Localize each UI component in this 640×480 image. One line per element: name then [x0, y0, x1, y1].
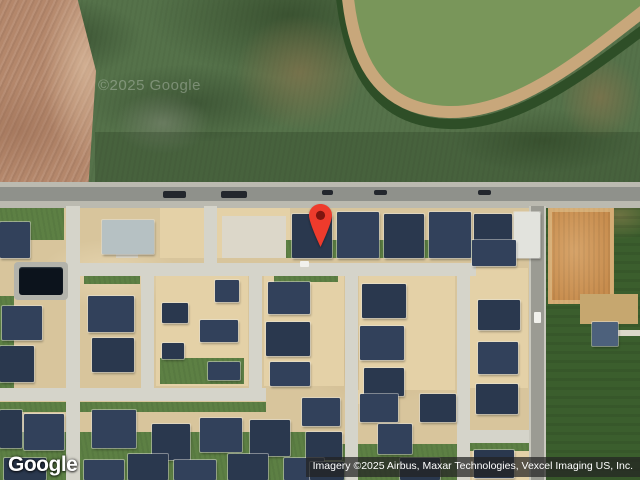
house-roof	[364, 368, 404, 396]
google-logo[interactable]: Google	[8, 453, 77, 477]
streets-patch	[141, 268, 154, 398]
house-roof	[24, 414, 64, 450]
streets-patch	[62, 263, 476, 276]
streets-patch	[457, 264, 470, 480]
imagery-attribution: Imagery ©2025 Airbus, Maxar Technologies…	[306, 457, 640, 477]
house-roof	[228, 454, 268, 480]
house-roof	[337, 212, 379, 258]
streets-patch	[204, 206, 217, 268]
house-roof	[420, 394, 456, 422]
house-roof	[268, 282, 310, 314]
vehicles-patch	[374, 190, 387, 195]
house-roof	[162, 343, 184, 359]
house-roof	[0, 222, 30, 258]
house-roof	[84, 460, 124, 480]
house-roof	[360, 326, 404, 360]
vehicles-patch	[221, 191, 247, 198]
house-roof	[2, 306, 42, 340]
vehicles-patch	[163, 191, 186, 198]
water-patch	[19, 267, 63, 295]
house-roof	[478, 300, 520, 330]
pads-patch	[222, 216, 286, 258]
house-roof	[92, 410, 136, 448]
house-roof	[128, 454, 168, 480]
map-canvas[interactable]: ©2025 Google Google Imagery ©2025 Airbus…	[0, 0, 640, 480]
house-roof	[200, 418, 242, 452]
house-roof	[0, 346, 34, 382]
vehicles-patch	[478, 190, 491, 195]
house-roof	[200, 320, 238, 342]
vehicles-patch	[534, 312, 541, 323]
house-roof	[302, 398, 340, 426]
pads-patch	[580, 294, 638, 324]
house-roof	[266, 322, 310, 356]
house-roof	[215, 280, 239, 302]
house-roof	[88, 296, 134, 332]
house-roof	[378, 424, 412, 454]
house-roof	[360, 394, 398, 422]
house-roof	[250, 420, 290, 456]
map-pin-icon[interactable]	[307, 202, 334, 249]
house-roof	[478, 342, 518, 374]
house-roof	[384, 214, 424, 258]
house-roof	[592, 322, 618, 346]
pads-patch	[618, 330, 640, 336]
house-roof	[306, 432, 342, 460]
house-roof	[162, 303, 188, 323]
house-roof	[514, 212, 540, 258]
streets-patch	[0, 388, 266, 401]
house-roof	[102, 220, 154, 254]
house-roof	[429, 212, 471, 258]
canal-levee-track	[0, 0, 640, 190]
house-roof	[270, 362, 310, 386]
vehicles-patch	[322, 190, 333, 195]
streets-patch	[249, 268, 262, 398]
house-roof	[0, 410, 22, 448]
house-roof	[362, 284, 406, 318]
house-roof	[472, 240, 516, 266]
map-watermark: ©2025 Google	[98, 77, 201, 94]
streets-patch	[66, 206, 80, 480]
house-roof	[92, 338, 134, 372]
house-roof	[476, 384, 518, 414]
lots-patch	[548, 208, 614, 304]
house-roof	[174, 460, 216, 480]
streets-patch	[345, 264, 358, 480]
house-roof	[208, 362, 240, 380]
streets-patch	[466, 430, 532, 443]
vehicles-patch	[300, 261, 309, 267]
